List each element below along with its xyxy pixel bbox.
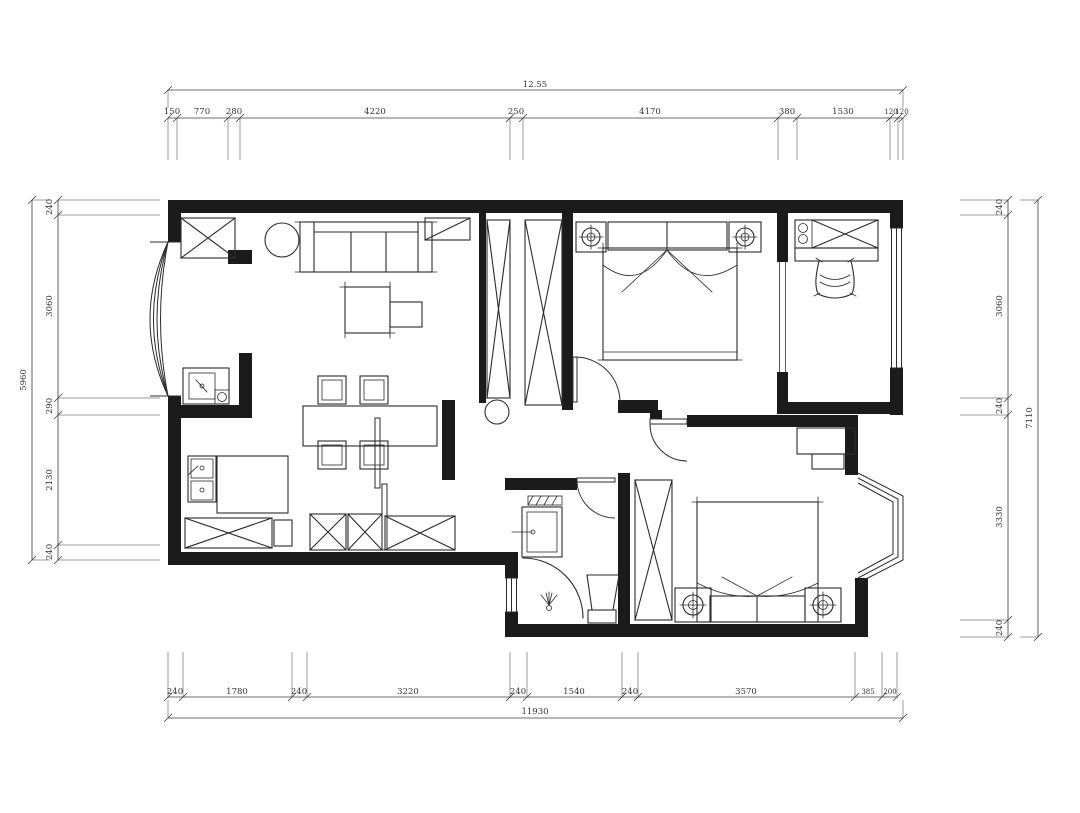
nightstand2-left-icon — [675, 588, 711, 622]
svg-text:150: 150 — [164, 107, 180, 117]
svg-text:290: 290 — [45, 398, 55, 414]
master-nightstand-left-icon — [576, 222, 606, 252]
svg-text:4170: 4170 — [639, 107, 661, 117]
furniture-bedroom2 — [635, 428, 855, 622]
svg-text:200: 200 — [883, 688, 896, 696]
dim-labels-right: 240 3060 240 3330 240 7110 — [995, 199, 1035, 636]
hall-plant-icon — [485, 400, 509, 424]
shower-icon — [523, 558, 583, 618]
svg-text:1540: 1540 — [563, 687, 585, 697]
hall-closet-right-icon — [525, 220, 562, 405]
dim-left-chain — [54, 196, 160, 564]
bathroom-window-icon — [505, 578, 518, 612]
tv-cabinets-icon — [310, 514, 455, 550]
dim-top-chain — [164, 114, 907, 160]
svg-text:2130: 2130 — [45, 469, 55, 491]
svg-text:240: 240 — [510, 687, 526, 697]
bathroom-shelf-icon — [528, 496, 562, 505]
furniture-study — [795, 220, 878, 298]
svg-text:240: 240 — [995, 199, 1005, 215]
svg-text:380: 380 — [779, 107, 795, 117]
svg-text:385: 385 — [861, 688, 874, 696]
svg-text:3060: 3060 — [995, 295, 1005, 317]
svg-text:120: 120 — [895, 108, 908, 116]
bay-window-living-icon — [150, 242, 181, 396]
study-window-icon — [890, 228, 903, 368]
dim-left-total — [28, 196, 50, 564]
svg-text:240: 240 — [45, 199, 55, 215]
floor-plan-canvas: 12.55 150 770 280 4220 250 4170 380 1530… — [0, 0, 1080, 813]
master-bedroom-door — [573, 357, 620, 402]
dim-left-total-label: 5960 — [19, 369, 29, 391]
second-bed-icon — [692, 497, 823, 622]
bedroom2-door — [650, 419, 687, 461]
plant-icon — [265, 223, 299, 257]
kitchen-counter-icon — [217, 456, 288, 513]
entry-cabinet-icon — [181, 218, 235, 258]
svg-text:3060: 3060 — [45, 295, 55, 317]
furniture-hall — [485, 220, 562, 424]
svg-text:4220: 4220 — [364, 107, 386, 117]
svg-text:250: 250 — [508, 107, 524, 117]
furniture-living — [181, 218, 470, 550]
dim-right-total-label: 7110 — [1025, 407, 1035, 429]
bay-window-bedroom-icon — [858, 473, 903, 583]
furniture-kitchen — [185, 456, 292, 548]
svg-text:280: 280 — [226, 107, 242, 117]
kitchen-sink-icon — [188, 456, 216, 502]
sofa-icon — [295, 222, 437, 272]
svg-text:1780: 1780 — [226, 687, 248, 697]
dim-labels-bottom: 240 1780 240 3220 240 1540 240 3570 385 … — [167, 687, 897, 717]
svg-text:240: 240 — [622, 687, 638, 697]
dim-bottom-total-label: 11930 — [521, 707, 548, 717]
svg-text:3330: 3330 — [995, 506, 1005, 528]
dim-right-chain — [960, 196, 1012, 641]
master-bed-icon — [598, 222, 742, 360]
dining-table-icon — [303, 406, 437, 446]
nightstand2-right-icon — [805, 588, 841, 622]
dim-top-total-label: 12.55 — [523, 80, 547, 90]
svg-text:3570: 3570 — [735, 687, 757, 697]
wash-basin-icon — [183, 368, 229, 404]
dim-labels-top: 12.55 150 770 280 4220 250 4170 380 1530… — [164, 80, 909, 117]
kitchen-cabinets-icon — [185, 518, 292, 548]
svg-text:240: 240 — [995, 620, 1005, 636]
study-chair-icon — [814, 258, 856, 298]
svg-text:240: 240 — [45, 544, 55, 560]
floor-plan-page: 12.55 150 770 280 4220 250 4170 380 1530… — [0, 0, 1080, 813]
dim-bottom-chain — [164, 652, 901, 701]
study-opening — [780, 262, 786, 372]
bathroom-door — [577, 478, 615, 518]
svg-text:240: 240 — [291, 687, 307, 697]
dim-labels-left: 240 3060 290 2130 240 5960 — [19, 199, 55, 560]
furniture-master-bedroom — [576, 222, 761, 360]
svg-text:240: 240 — [995, 398, 1005, 414]
toilet-icon — [587, 575, 619, 623]
svg-text:1530: 1530 — [832, 107, 854, 117]
study-desk-icon — [795, 220, 878, 261]
svg-text:770: 770 — [194, 107, 210, 117]
wardrobe-icon — [635, 480, 672, 620]
bathroom-sink-icon — [512, 507, 562, 557]
svg-text:240: 240 — [167, 687, 183, 697]
furniture-bathroom — [512, 496, 619, 623]
svg-text:3220: 3220 — [397, 687, 419, 697]
coffee-table-icon — [340, 282, 422, 338]
hall-closet-left-icon — [487, 220, 510, 398]
walls — [168, 200, 903, 637]
